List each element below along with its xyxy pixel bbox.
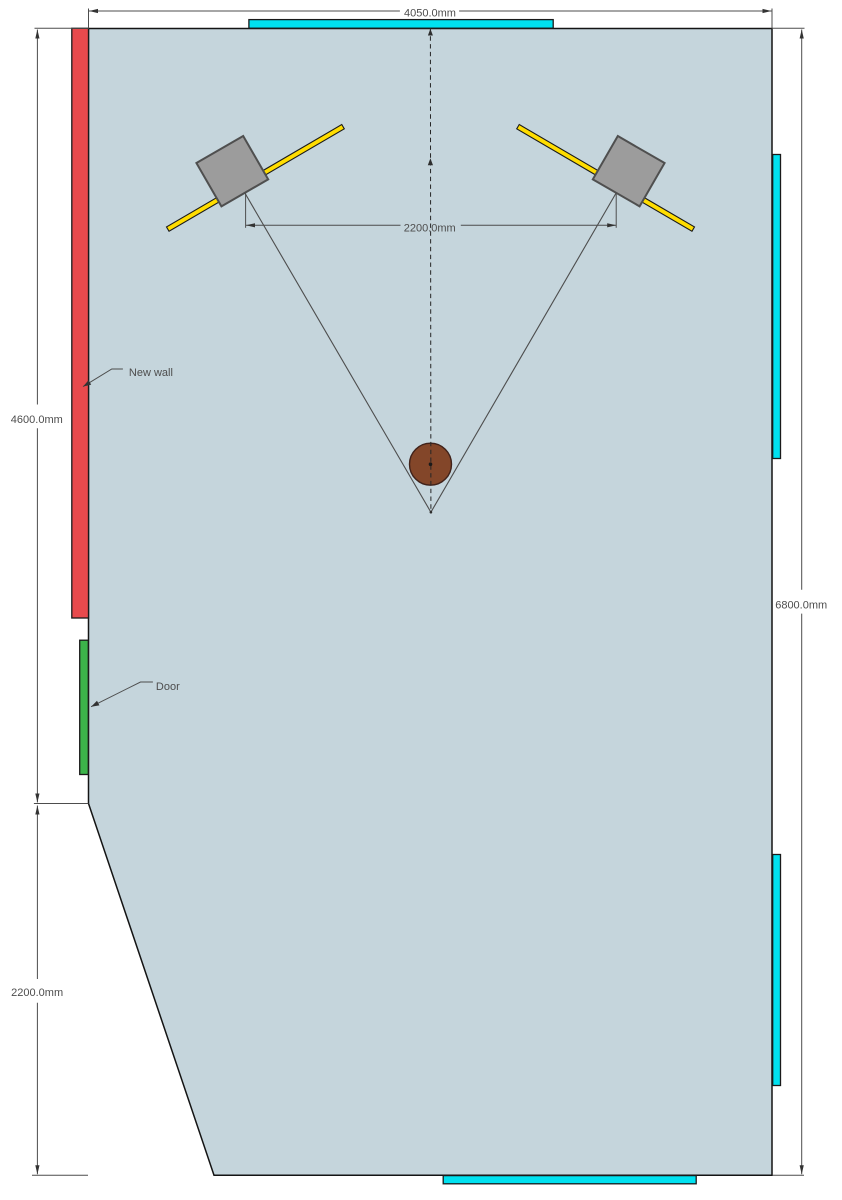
svg-text:6800.0mm: 6800.0mm	[775, 599, 827, 611]
svg-text:2200.0mm: 2200.0mm	[11, 987, 63, 999]
svg-text:4050.0mm: 4050.0mm	[404, 7, 456, 19]
svg-text:2200.0mm: 2200.0mm	[404, 223, 456, 235]
svg-text:4600.0mm: 4600.0mm	[11, 414, 63, 426]
svg-text:New wall: New wall	[129, 367, 173, 379]
svg-text:Door: Door	[156, 681, 180, 693]
